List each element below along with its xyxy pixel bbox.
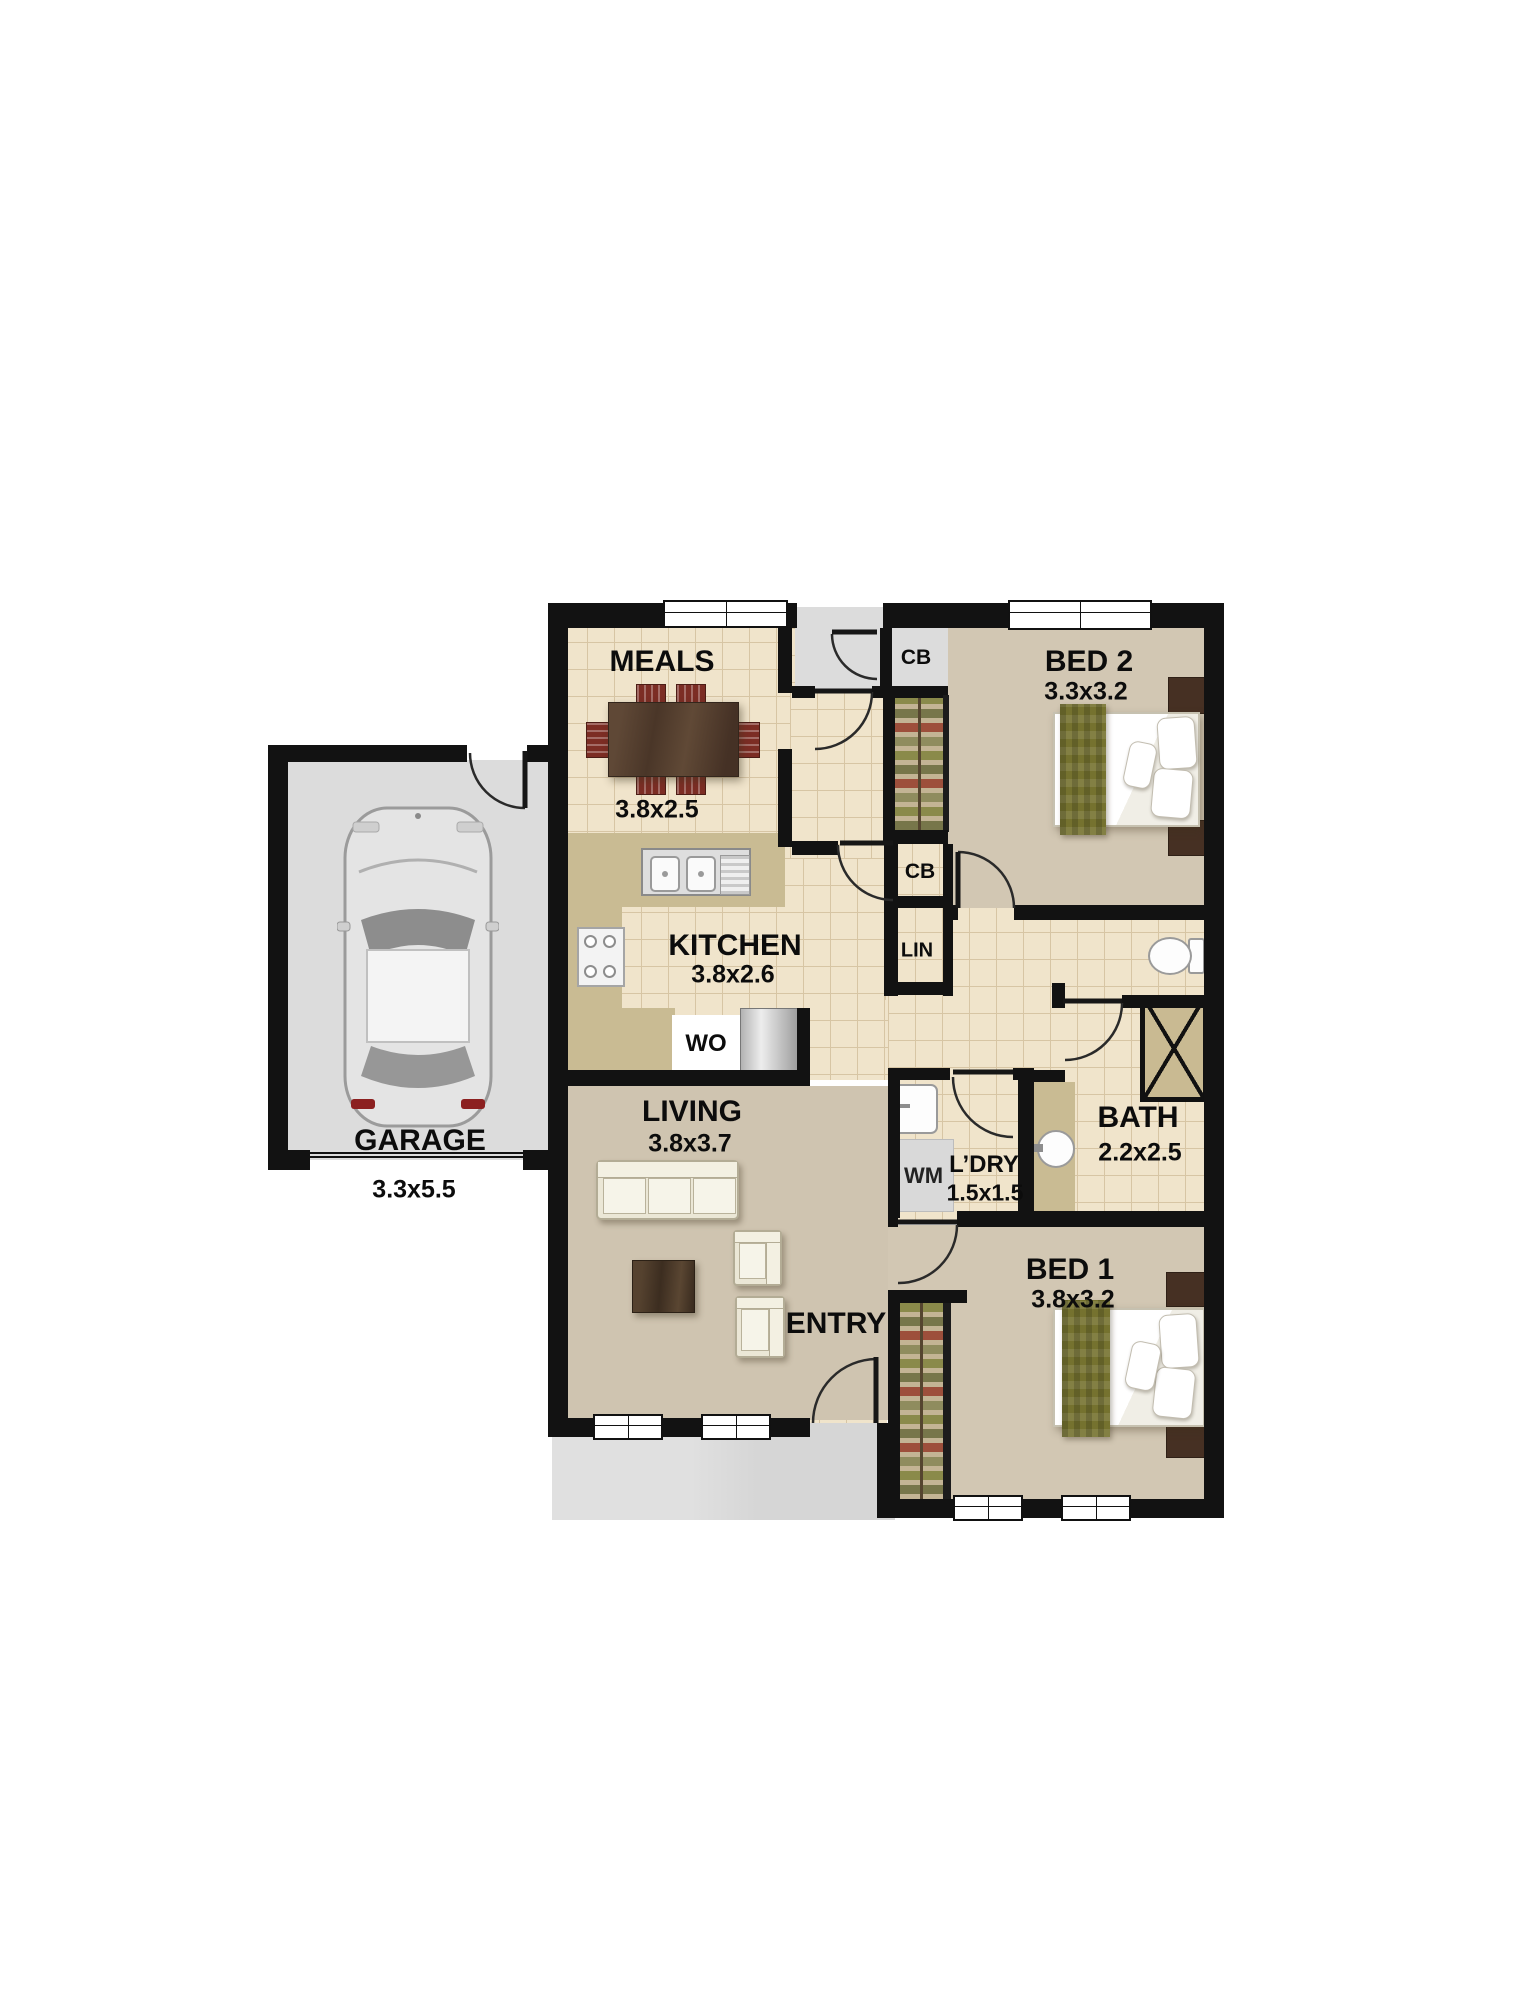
label-wall-oven: WO: [685, 1030, 726, 1058]
bed1-door-arc: [898, 1225, 957, 1283]
room-label-laundry: L’DRY: [949, 1151, 1019, 1179]
room-dims-bed1: 3.8x3.2: [1031, 1286, 1114, 1315]
room-dims-garage: 3.3x5.5: [372, 1176, 455, 1205]
garage-door-arc: [470, 753, 525, 808]
room-label-kitchen: KITCHEN: [668, 929, 801, 963]
bed2-door-arc: [958, 852, 1014, 908]
window-meals: [663, 600, 788, 628]
hall-door-arc: [815, 692, 872, 749]
laundry-door-arc: [953, 1077, 1013, 1137]
room-label-living: LIVING: [642, 1095, 742, 1129]
porch-door-arc: [832, 634, 877, 679]
window-bed1: [953, 1495, 1023, 1521]
label-cupboard-top: CB: [901, 646, 931, 670]
window-bed1: [1061, 1495, 1131, 1521]
window-living: [701, 1414, 771, 1440]
room-dims-bed2: 3.3x3.2: [1044, 678, 1127, 707]
room-label-bath: BATH: [1097, 1101, 1178, 1135]
floor-plan: WM: [0, 0, 1538, 2000]
window-bed2: [1008, 600, 1152, 630]
room-dims-living: 3.8x3.7: [648, 1130, 731, 1159]
room-label-bed2: BED 2: [1045, 645, 1133, 679]
window-living: [593, 1414, 663, 1440]
room-label-bed1: BED 1: [1026, 1253, 1114, 1287]
room-dims-laundry: 1.5x1.5: [947, 1180, 1024, 1207]
entry-door-arc: [813, 1359, 876, 1423]
room-label-meals: MEALS: [610, 645, 715, 679]
room-label-entry: ENTRY: [786, 1307, 887, 1341]
room-dims-meals: 3.8x2.5: [615, 796, 698, 825]
room-label-garage: GARAGE: [354, 1124, 486, 1158]
kitchen-door-arc: [838, 845, 893, 900]
room-dims-bath: 2.2x2.5: [1098, 1139, 1181, 1168]
room-dims-kitchen: 3.8x2.6: [691, 961, 774, 990]
label-linen: LIN: [901, 940, 933, 963]
label-cupboard-hall: CB: [905, 860, 935, 884]
door-swings: [0, 0, 1538, 2000]
bath-door-arc: [1065, 1003, 1122, 1060]
